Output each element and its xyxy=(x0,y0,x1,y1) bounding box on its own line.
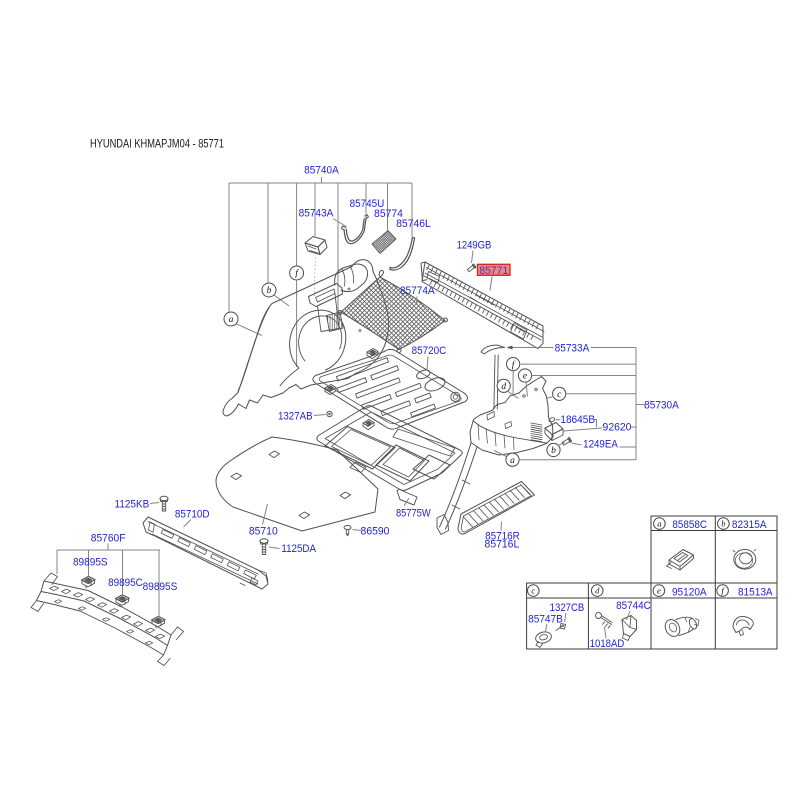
svg-text:18645B: 18645B xyxy=(560,414,595,426)
svg-text:92620: 92620 xyxy=(603,422,632,434)
svg-text:85747B: 85747B xyxy=(528,614,563,626)
svg-text:89895S: 89895S xyxy=(73,557,108,569)
svg-text:1125KB: 1125KB xyxy=(115,499,150,511)
svg-text:89895S: 89895S xyxy=(143,581,178,593)
svg-text:c: c xyxy=(531,585,535,595)
svg-text:HYUNDAI KHMAPJM04 - 85771: HYUNDAI KHMAPJM04 - 85771 xyxy=(90,137,224,151)
svg-text:b: b xyxy=(267,286,272,296)
svg-text:d: d xyxy=(595,585,600,595)
svg-text:85744C: 85744C xyxy=(616,600,651,612)
svg-text:85730A: 85730A xyxy=(644,400,680,412)
svg-text:85710: 85710 xyxy=(249,525,278,537)
svg-text:85740A: 85740A xyxy=(304,165,340,177)
svg-text:a: a xyxy=(657,518,661,528)
svg-text:e: e xyxy=(657,585,661,595)
svg-text:b: b xyxy=(721,518,725,528)
svg-text:85775W: 85775W xyxy=(396,507,431,519)
svg-text:82315A: 82315A xyxy=(732,519,768,531)
svg-text:d: d xyxy=(501,382,506,392)
svg-text:81513A: 81513A xyxy=(738,586,774,598)
svg-text:1327CB: 1327CB xyxy=(550,602,585,614)
svg-text:85733A: 85733A xyxy=(555,342,591,354)
svg-text:a: a xyxy=(510,456,515,466)
svg-text:85720C: 85720C xyxy=(412,345,447,357)
svg-text:b: b xyxy=(551,446,556,456)
svg-text:1327AB: 1327AB xyxy=(278,411,313,423)
svg-text:85760F: 85760F xyxy=(91,533,126,545)
svg-text:85743A: 85743A xyxy=(299,208,335,220)
svg-text:a: a xyxy=(229,315,234,325)
svg-text:85746L: 85746L xyxy=(396,218,431,230)
svg-text:85858C: 85858C xyxy=(672,519,707,531)
svg-text:e: e xyxy=(523,372,527,382)
svg-text:85771: 85771 xyxy=(479,265,508,277)
svg-text:89895C: 89895C xyxy=(108,577,143,589)
svg-text:85716L: 85716L xyxy=(485,539,520,551)
svg-text:1018AD: 1018AD xyxy=(590,638,625,650)
svg-text:85774A: 85774A xyxy=(400,285,436,297)
svg-text:1125DA: 1125DA xyxy=(281,543,317,555)
svg-text:1249EA: 1249EA xyxy=(583,439,619,451)
svg-text:85710D: 85710D xyxy=(175,509,210,521)
svg-text:95120A: 95120A xyxy=(672,586,708,598)
svg-text:1249GB: 1249GB xyxy=(457,239,492,251)
svg-text:86590: 86590 xyxy=(361,525,390,537)
